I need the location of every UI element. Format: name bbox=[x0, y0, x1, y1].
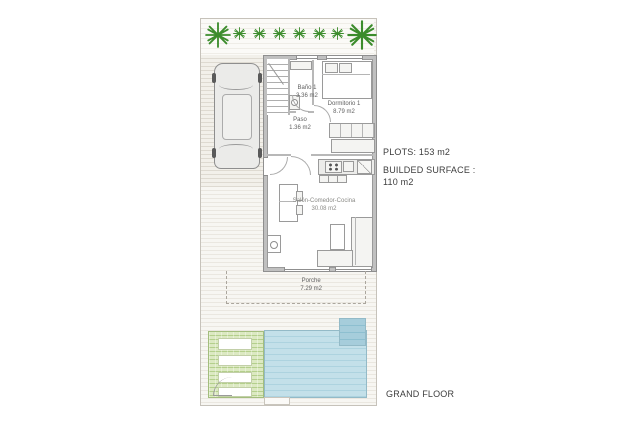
room-area: 7.29 m2 bbox=[300, 286, 322, 294]
room-area: 3.36 m2 bbox=[296, 93, 318, 101]
room-name: Salón-Comedor-Cocina bbox=[293, 198, 356, 206]
paver bbox=[218, 355, 252, 366]
coffee-table bbox=[330, 224, 345, 250]
car-windshield bbox=[219, 80, 253, 90]
entrance-opening bbox=[264, 157, 268, 176]
room-label-dormitorio: Dormitorio 1 8.79 m2 bbox=[328, 101, 361, 117]
car bbox=[214, 63, 260, 169]
room-label-bano: Baño 1 3.36 m2 bbox=[296, 85, 318, 101]
room-area: 1.36 m2 bbox=[289, 125, 311, 133]
palm-tree-icon bbox=[273, 27, 286, 40]
bed-blanket-line bbox=[322, 74, 370, 75]
bed-pillow bbox=[339, 63, 352, 73]
room-name: Porche bbox=[300, 278, 322, 286]
palm-tree-icon bbox=[347, 20, 377, 50]
palm-tree-icon bbox=[293, 27, 306, 40]
car-wheel bbox=[258, 148, 262, 158]
wc-bowl bbox=[270, 241, 278, 249]
house-outline: Baño 1 3.36 m2 Dormitorio 1 8.79 m2 Paso… bbox=[264, 56, 376, 271]
plots-text: PLOTS: 153 m2 bbox=[383, 147, 475, 158]
dresser bbox=[331, 139, 375, 153]
room-area: 8.79 m2 bbox=[328, 109, 361, 117]
car-wheel bbox=[212, 73, 216, 83]
floor-name: GRAND FLOOR bbox=[386, 389, 454, 399]
wall-dormitorio-salon bbox=[311, 154, 373, 156]
bathroom-sink bbox=[290, 61, 312, 70]
built-surface-text: BUILDED SURFACE : bbox=[383, 165, 475, 176]
car-wheel bbox=[258, 73, 262, 83]
room-area: 30.08 m2 bbox=[293, 206, 356, 214]
sofa-cushion-line bbox=[355, 217, 356, 265]
room-name: Baño 1 bbox=[296, 85, 318, 93]
built-surface-value: 110 m2 bbox=[383, 177, 475, 188]
plan-annotations: PLOTS: 153 m2 BUILDED SURFACE : 110 m2 bbox=[383, 147, 475, 188]
window bbox=[326, 56, 363, 60]
wardrobe bbox=[329, 123, 375, 138]
bed-pillow bbox=[325, 63, 338, 73]
floor-plan-canvas: Baño 1 3.36 m2 Dormitorio 1 8.79 m2 Paso… bbox=[0, 0, 630, 423]
car-rear-window bbox=[219, 144, 253, 154]
window bbox=[296, 56, 318, 60]
cooktop bbox=[325, 161, 342, 173]
sofa-bottom bbox=[317, 250, 353, 267]
swimming-pool bbox=[264, 330, 367, 398]
car-roof bbox=[222, 94, 252, 140]
room-label-paso: Paso 1.36 m2 bbox=[289, 117, 311, 133]
car-wheel bbox=[212, 148, 216, 158]
door-arc-entrance bbox=[270, 157, 288, 175]
walkway-step bbox=[264, 397, 290, 405]
door-arc-paso-salon bbox=[291, 156, 311, 175]
plot-boundary: Baño 1 3.36 m2 Dormitorio 1 8.79 m2 Paso… bbox=[200, 18, 377, 406]
pool-steps bbox=[339, 318, 366, 346]
paver bbox=[218, 338, 252, 350]
palm-tree-icon bbox=[205, 22, 231, 48]
porch-area: Porche 7.29 m2 bbox=[226, 271, 366, 304]
palm-tree-icon bbox=[253, 27, 266, 40]
wall-paso-salon bbox=[267, 154, 291, 156]
kitchen-sink bbox=[343, 161, 354, 172]
wall-bano-paso bbox=[288, 111, 296, 113]
palm-tree-icon bbox=[233, 27, 246, 40]
stool bbox=[337, 175, 347, 183]
fridge bbox=[357, 160, 372, 174]
palm-tree-icon bbox=[313, 27, 326, 40]
palm-tree-icon bbox=[331, 27, 344, 40]
palm-row bbox=[201, 19, 374, 56]
room-name: Paso bbox=[289, 117, 311, 125]
room-name: Dormitorio 1 bbox=[328, 101, 361, 109]
room-label-porche: Porche 7.29 m2 bbox=[300, 278, 322, 294]
room-label-salon: Salón-Comedor-Cocina 30.08 m2 bbox=[293, 198, 356, 214]
